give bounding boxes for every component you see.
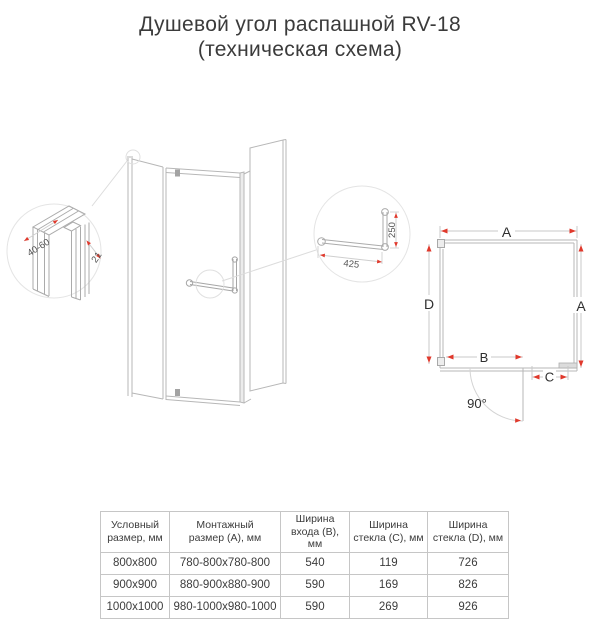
size-table: Условный размер, мм Монтажный размер (А)… (100, 511, 509, 619)
towel-bar-knob (318, 238, 326, 246)
cell-nominal: 800x800 (101, 552, 170, 574)
col-header-nominal-size: Условный размер, мм (101, 512, 170, 553)
profile-step (64, 222, 81, 231)
handle-height-label: 250 (387, 222, 398, 238)
cell-mounting: 880-900x880-900 (170, 574, 281, 596)
profile-width-range-label: 40-60 (25, 237, 51, 259)
cell-glass-d: 826 (428, 574, 509, 596)
handle-highlight-circle (196, 270, 224, 298)
header-line: размер (А), мм (172, 532, 278, 545)
plan-bottom-wall (440, 368, 577, 371)
header-line: Монтажный (172, 519, 278, 532)
dim-line-40-60 (24, 220, 58, 241)
towel-bar (322, 240, 383, 250)
wall-profile-section (33, 206, 89, 300)
handle-detail-callout: 425 250 (314, 186, 410, 282)
header-line: стекла (D), мм (430, 532, 506, 545)
plan-view: A D A B C 90° (422, 223, 590, 423)
plan-dim-side-label: C (545, 370, 554, 385)
header-line: Ширина (283, 513, 347, 526)
cell-glass-c: 169 (350, 574, 428, 596)
cell-nominal: 900x900 (101, 574, 170, 596)
handle-grip (233, 259, 237, 291)
door-closing-post (240, 172, 244, 403)
hinge-top-icon (175, 170, 180, 177)
fixed-glass-left (132, 159, 163, 399)
col-header-mounting-size: Монтажный размер (А), мм (170, 512, 281, 553)
door-swing-arc (470, 368, 523, 421)
handle-length-label: 425 (343, 258, 360, 271)
profile-right-walls (72, 223, 90, 301)
plan-dim-opening-label: B (480, 350, 489, 365)
door-hinge-post (163, 167, 166, 400)
door-handle (186, 257, 237, 293)
plan-corner-profile-bottom (438, 358, 445, 366)
header-line: размер, мм (103, 532, 167, 545)
plan-top-wall (440, 240, 577, 243)
plan-dim-left-label: D (424, 296, 434, 312)
callout-circle (7, 204, 101, 298)
header-line: Ширина (352, 519, 425, 532)
table-header-row: Условный размер, мм Монтажный размер (А)… (101, 512, 509, 553)
table-row: 900x900 880-900x880-900 590 169 826 (101, 574, 509, 596)
header-line: Условный (103, 519, 167, 532)
towel-bar-knob (186, 280, 192, 286)
side-glass-panel (250, 140, 286, 392)
header-line: стекла (C), мм (352, 532, 425, 545)
plan-dim-top-label: A (502, 224, 512, 240)
col-header-glass-width-c: Ширина стекла (C), мм (350, 512, 428, 553)
profile-detail-callout: 40-60 21 (7, 204, 104, 300)
plan-dim-right-label: A (576, 298, 586, 314)
cell-entry: 590 (281, 574, 350, 596)
wall-profile-left (127, 157, 133, 397)
profile-left-walls (33, 227, 49, 296)
profile-depth-label: 21 (89, 250, 104, 265)
col-header-glass-width-d: Ширина стекла (D), мм (428, 512, 509, 553)
door-angle-label: 90° (467, 396, 487, 411)
technical-scheme: 40-60 21 425 250 (0, 0, 600, 600)
handle-detail-drawing (318, 209, 389, 251)
door-bottom-rail (166, 396, 240, 406)
plan-corner-profile-top (438, 240, 445, 248)
cell-glass-c: 119 (350, 552, 428, 574)
plan-left-wall (440, 240, 443, 368)
header-line: Ширина (430, 519, 506, 532)
header-line: входа (B), мм (283, 526, 347, 551)
table-row: 800x800 780-800x780-800 540 119 726 (101, 552, 509, 574)
profile-leader-line (92, 161, 127, 206)
cell-entry: 540 (281, 552, 350, 574)
cell-mounting: 780-800x780-800 (170, 552, 281, 574)
hinge-bottom-icon (175, 389, 180, 396)
cell-glass-d: 726 (428, 552, 509, 574)
main-drawing (92, 140, 316, 406)
col-header-entry-width: Ширина входа (B), мм (281, 512, 350, 553)
